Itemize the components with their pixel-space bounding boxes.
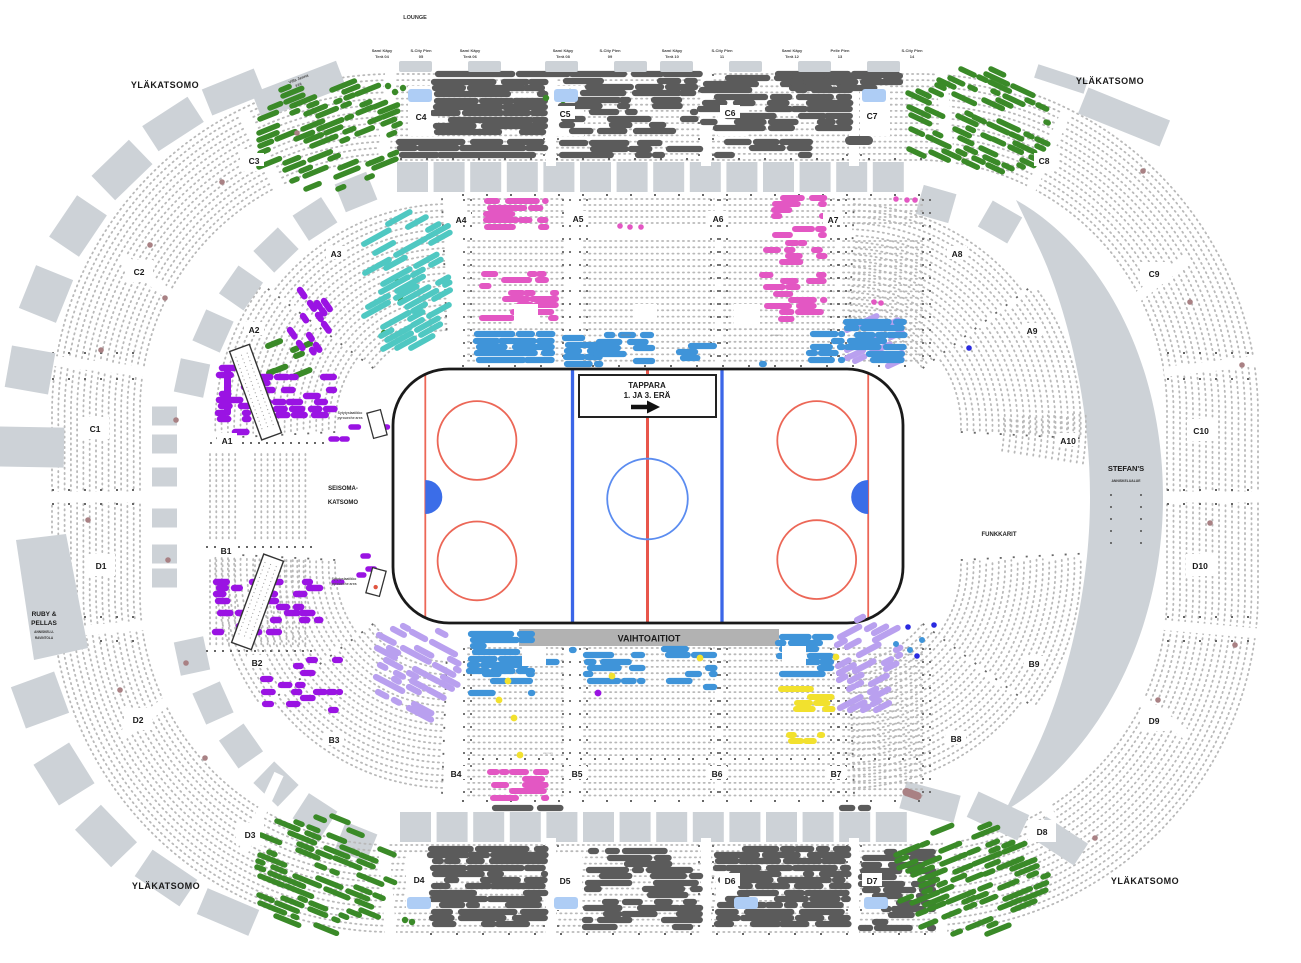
svg-text:B1: B1 bbox=[221, 546, 232, 556]
svg-text:LOUNGE: LOUNGE bbox=[403, 15, 427, 21]
svg-text:Terä 12: Terä 12 bbox=[785, 54, 799, 59]
svg-text:A8: A8 bbox=[952, 249, 963, 259]
svg-text:Sami Käpy: Sami Käpy bbox=[553, 48, 574, 53]
svg-text:B7: B7 bbox=[831, 769, 842, 779]
svg-text:Sami Käpy: Sami Käpy bbox=[782, 48, 803, 53]
svg-text:S-City Pien: S-City Pien bbox=[901, 48, 923, 53]
svg-text:S-City Pien: S-City Pien bbox=[599, 48, 621, 53]
svg-text:C2: C2 bbox=[134, 267, 145, 277]
svg-text:YLÄKATSOMO: YLÄKATSOMO bbox=[1111, 876, 1179, 886]
svg-text:B3: B3 bbox=[329, 735, 340, 745]
svg-text:A2: A2 bbox=[249, 325, 260, 335]
svg-text:VAIHTOAITIOT: VAIHTOAITIOT bbox=[618, 634, 681, 644]
svg-text:C3: C3 bbox=[249, 156, 260, 166]
svg-text:C1: C1 bbox=[90, 424, 101, 434]
svg-text:D9: D9 bbox=[1149, 716, 1160, 726]
svg-text:A5: A5 bbox=[573, 214, 584, 224]
svg-text:C7: C7 bbox=[867, 111, 878, 121]
svg-text:1. JA 3. ERÄ: 1. JA 3. ERÄ bbox=[624, 391, 671, 400]
svg-text:STEFAN'S: STEFAN'S bbox=[1108, 464, 1144, 473]
svg-text:xxx xxx: xxx xxx bbox=[543, 751, 553, 755]
svg-text:A6: A6 bbox=[713, 214, 724, 224]
svg-text:B9: B9 bbox=[1029, 659, 1040, 669]
svg-text:D5: D5 bbox=[560, 876, 571, 886]
svg-text:Pelle Pien: Pelle Pien bbox=[831, 48, 850, 53]
svg-text:S-City Pien: S-City Pien bbox=[711, 48, 733, 53]
svg-text:YLÄKATSOMO: YLÄKATSOMO bbox=[1076, 76, 1144, 86]
svg-text:YLÄKATSOMO: YLÄKATSOMO bbox=[132, 881, 200, 891]
svg-text:09: 09 bbox=[608, 54, 613, 59]
svg-text:B6: B6 bbox=[712, 769, 723, 779]
svg-text:A7: A7 bbox=[828, 215, 839, 225]
svg-text:B5: B5 bbox=[572, 769, 583, 779]
svg-text:Sytytyslaatikko: Sytytyslaatikko bbox=[332, 577, 357, 581]
svg-text:D8: D8 bbox=[1037, 827, 1048, 837]
svg-text:PELLAS: PELLAS bbox=[31, 620, 57, 627]
svg-text:xxx xxx: xxx xxx bbox=[843, 751, 853, 755]
svg-text:D1: D1 bbox=[96, 561, 107, 571]
svg-text:RAVINTOLA: RAVINTOLA bbox=[35, 636, 54, 640]
svg-text:A9: A9 bbox=[1027, 326, 1038, 336]
svg-text:FUNKKARIT: FUNKKARIT bbox=[982, 532, 1017, 538]
svg-text:YLÄKATSOMO: YLÄKATSOMO bbox=[131, 80, 199, 90]
svg-text:C8: C8 bbox=[1039, 156, 1050, 166]
svg-text:Terä 08: Terä 08 bbox=[556, 54, 570, 59]
svg-text:TAPPARA: TAPPARA bbox=[628, 381, 666, 390]
svg-text:A3: A3 bbox=[331, 249, 342, 259]
svg-text:RUBY &: RUBY & bbox=[32, 611, 57, 618]
svg-text:xxx xxx: xxx xxx bbox=[771, 333, 781, 337]
svg-text:C10: C10 bbox=[1193, 426, 1209, 436]
svg-text:C4: C4 bbox=[416, 112, 427, 122]
svg-text:Sytytyslaatikko: Sytytyslaatikko bbox=[338, 411, 363, 415]
svg-text:A4: A4 bbox=[456, 215, 467, 225]
svg-text:B8: B8 bbox=[951, 734, 962, 744]
svg-text:ANNISKELU-: ANNISKELU- bbox=[34, 630, 54, 634]
svg-text:Terä 06: Terä 06 bbox=[463, 54, 477, 59]
svg-text:xxx xxx: xxx xxx bbox=[621, 333, 631, 337]
svg-text:Sami Käpy: Sami Käpy bbox=[662, 48, 683, 53]
svg-text:D7: D7 bbox=[867, 876, 878, 886]
svg-text:Sami Käpy: Sami Käpy bbox=[460, 48, 481, 53]
svg-text:B2: B2 bbox=[252, 658, 263, 668]
svg-text:Terä 10: Terä 10 bbox=[665, 54, 679, 59]
svg-text:pyroueche area: pyroueche area bbox=[337, 416, 362, 420]
svg-text:D4: D4 bbox=[414, 875, 425, 885]
svg-text:A1: A1 bbox=[222, 436, 233, 446]
svg-text:KATSOMO: KATSOMO bbox=[328, 500, 359, 506]
svg-text:C6: C6 bbox=[725, 108, 736, 118]
svg-text:Sami Käpy: Sami Käpy bbox=[372, 48, 393, 53]
svg-text:C9: C9 bbox=[1149, 269, 1160, 279]
svg-text:B4: B4 bbox=[451, 769, 462, 779]
svg-text:D6: D6 bbox=[725, 876, 736, 886]
svg-text:D3: D3 bbox=[245, 830, 256, 840]
svg-text:05: 05 bbox=[419, 54, 424, 59]
svg-text:D2: D2 bbox=[133, 715, 144, 725]
svg-text:Terä 04: Terä 04 bbox=[375, 54, 389, 59]
svg-text:A10: A10 bbox=[1060, 436, 1076, 446]
svg-text:D10: D10 bbox=[1192, 561, 1208, 571]
svg-text:SEISOMA-: SEISOMA- bbox=[328, 486, 358, 492]
svg-text:13: 13 bbox=[838, 54, 843, 59]
svg-text:pyroueche area: pyroueche area bbox=[331, 582, 356, 586]
svg-text:C5: C5 bbox=[560, 109, 571, 119]
svg-text:14: 14 bbox=[910, 54, 915, 59]
svg-text:S-City Pien: S-City Pien bbox=[410, 48, 432, 53]
svg-text:ANNISKELUALUE: ANNISKELUALUE bbox=[1111, 479, 1141, 483]
